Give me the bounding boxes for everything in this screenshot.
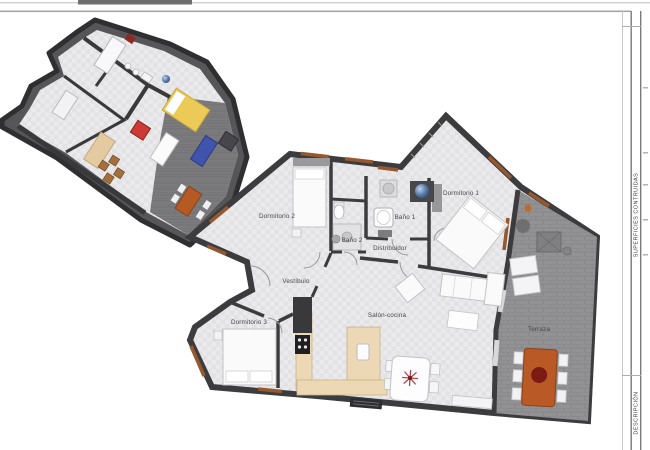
- room-label-dormitorio-2: Dormitorio 2: [259, 213, 295, 220]
- room-label-bano-1: Baño 1: [395, 214, 416, 221]
- room-label-dormitorio-3: Dormitorio 3: [231, 319, 267, 326]
- floorplan-page: SUPERFICIES CONTRUIDAS DESCRIPCIÓN: [0, 0, 650, 450]
- plan3d-view: [2, 20, 247, 245]
- kitchen-tall-cabinet: [293, 297, 312, 333]
- plan2d-dorm2-furniture: [292, 158, 330, 237]
- shower-ball: [415, 184, 429, 198]
- titleblock-line-inner: [640, 11, 641, 450]
- titleblock-divider-top: [622, 26, 641, 27]
- titleblock-table-fragments: [643, 87, 648, 256]
- terrace-plant: [516, 219, 530, 233]
- plan2d-view: Dormitorio 1 Dormitorio 2 Dormitorio 3 B…: [190, 116, 597, 421]
- room-label-bano-2: Baño 2: [342, 237, 363, 244]
- plan3d-shower-ball: [162, 75, 170, 83]
- flower-centerpiece: [402, 369, 419, 386]
- room-label-dormitorio-1: Dormitorio 1: [443, 190, 479, 197]
- plan2d-dorm3-furniture: [214, 329, 276, 385]
- room-label-distribuidor: Distribuidor: [373, 245, 407, 252]
- kitchen-sink: [357, 344, 369, 360]
- terrace-dining-set: [512, 348, 569, 408]
- titleblock-divider-bottom: [622, 375, 641, 376]
- floorplan-image: SUPERFICIES CONTRUIDAS DESCRIPCIÓN: [0, 0, 650, 450]
- titleblock-descripcion-label: DESCRIPCIÓN: [633, 391, 640, 434]
- frame-line: [0, 11, 631, 13]
- room-label-vestibulo: Vestíbulo: [282, 278, 310, 285]
- room-label-salon-cocina: Salón-cocina: [368, 312, 407, 319]
- terrace-lamp: [525, 205, 532, 212]
- plan2d-bath2-dot: [332, 235, 340, 243]
- titleblock-line-outer: [622, 11, 623, 450]
- room-label-terraza: Terraza: [528, 326, 550, 333]
- titleblock-superficies-label: SUPERFICIES CONTRUIDAS: [634, 173, 640, 257]
- titleblock-line-mid: [631, 11, 632, 450]
- top-accent-bar: [78, 0, 192, 5]
- kitchen-cooktop: [295, 335, 310, 354]
